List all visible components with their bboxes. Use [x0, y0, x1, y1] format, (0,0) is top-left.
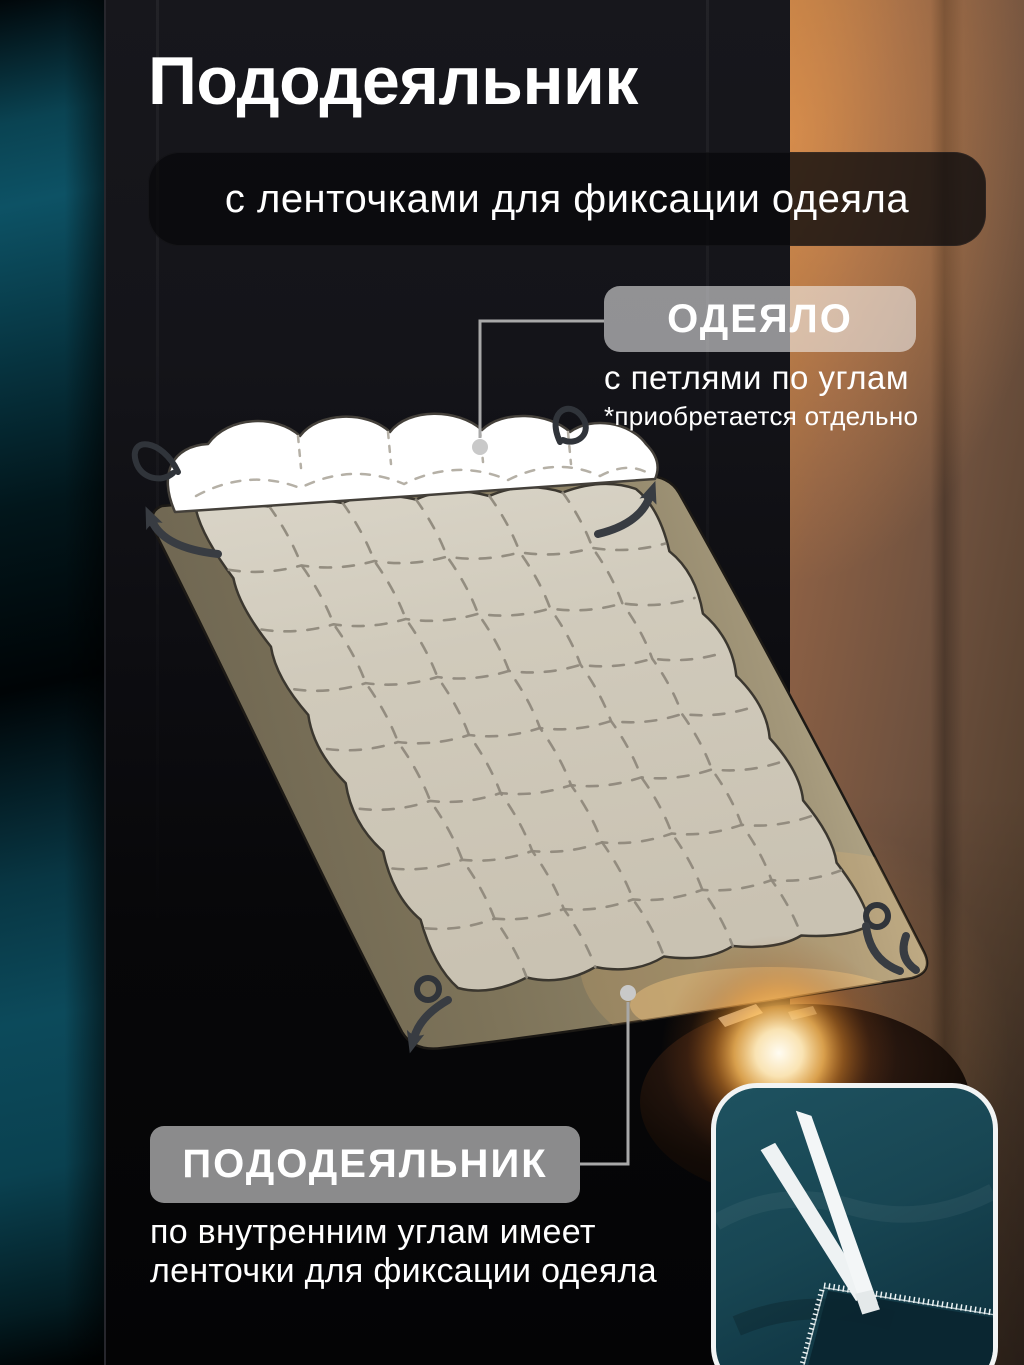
subtitle-banner: с ленточками для фиксации одеяла — [148, 152, 986, 246]
callout-dot-blanket — [472, 439, 488, 455]
page-title: Пододеяльник — [148, 42, 638, 120]
callout-dot-duvet — [620, 985, 636, 1001]
duvet-note-1: по внутренним углам имеет — [150, 1213, 690, 1252]
duvet-note: по внутренним углам имеет ленточки для ф… — [150, 1213, 690, 1292]
blanket-label: ОДЕЯЛО — [667, 297, 853, 342]
blanket-note-1: с петлями по углам — [604, 359, 1024, 397]
fabric-corner-flap — [802, 1291, 993, 1365]
blanket-note-2: *приобретается отдельно — [604, 401, 1024, 432]
ribbon-corner-photo — [716, 1088, 993, 1365]
duvet-label: ПОДОДЕЯЛЬНИК — [182, 1142, 547, 1187]
loop-ring-icon-top-left — [135, 444, 178, 478]
duvet-note-2: ленточки для фиксации одеяла — [150, 1252, 690, 1291]
duvet-label-pill: ПОДОДЕЯЛЬНИК — [150, 1126, 580, 1203]
blanket-label-pill: ОДЕЯЛО — [604, 286, 916, 352]
callout-blanket: ОДЕЯЛО с петлями по углам *приобретается… — [604, 286, 1024, 432]
subtitle-text: с ленточками для фиксации одеяла — [225, 177, 909, 222]
callout-duvet: ПОДОДЕЯЛЬНИК по внутренним углам имеет л… — [150, 1126, 690, 1292]
corner-photo-inset — [711, 1083, 998, 1365]
infographic-root: Пододеяльник с ленточками для фиксации о… — [0, 0, 1024, 1365]
